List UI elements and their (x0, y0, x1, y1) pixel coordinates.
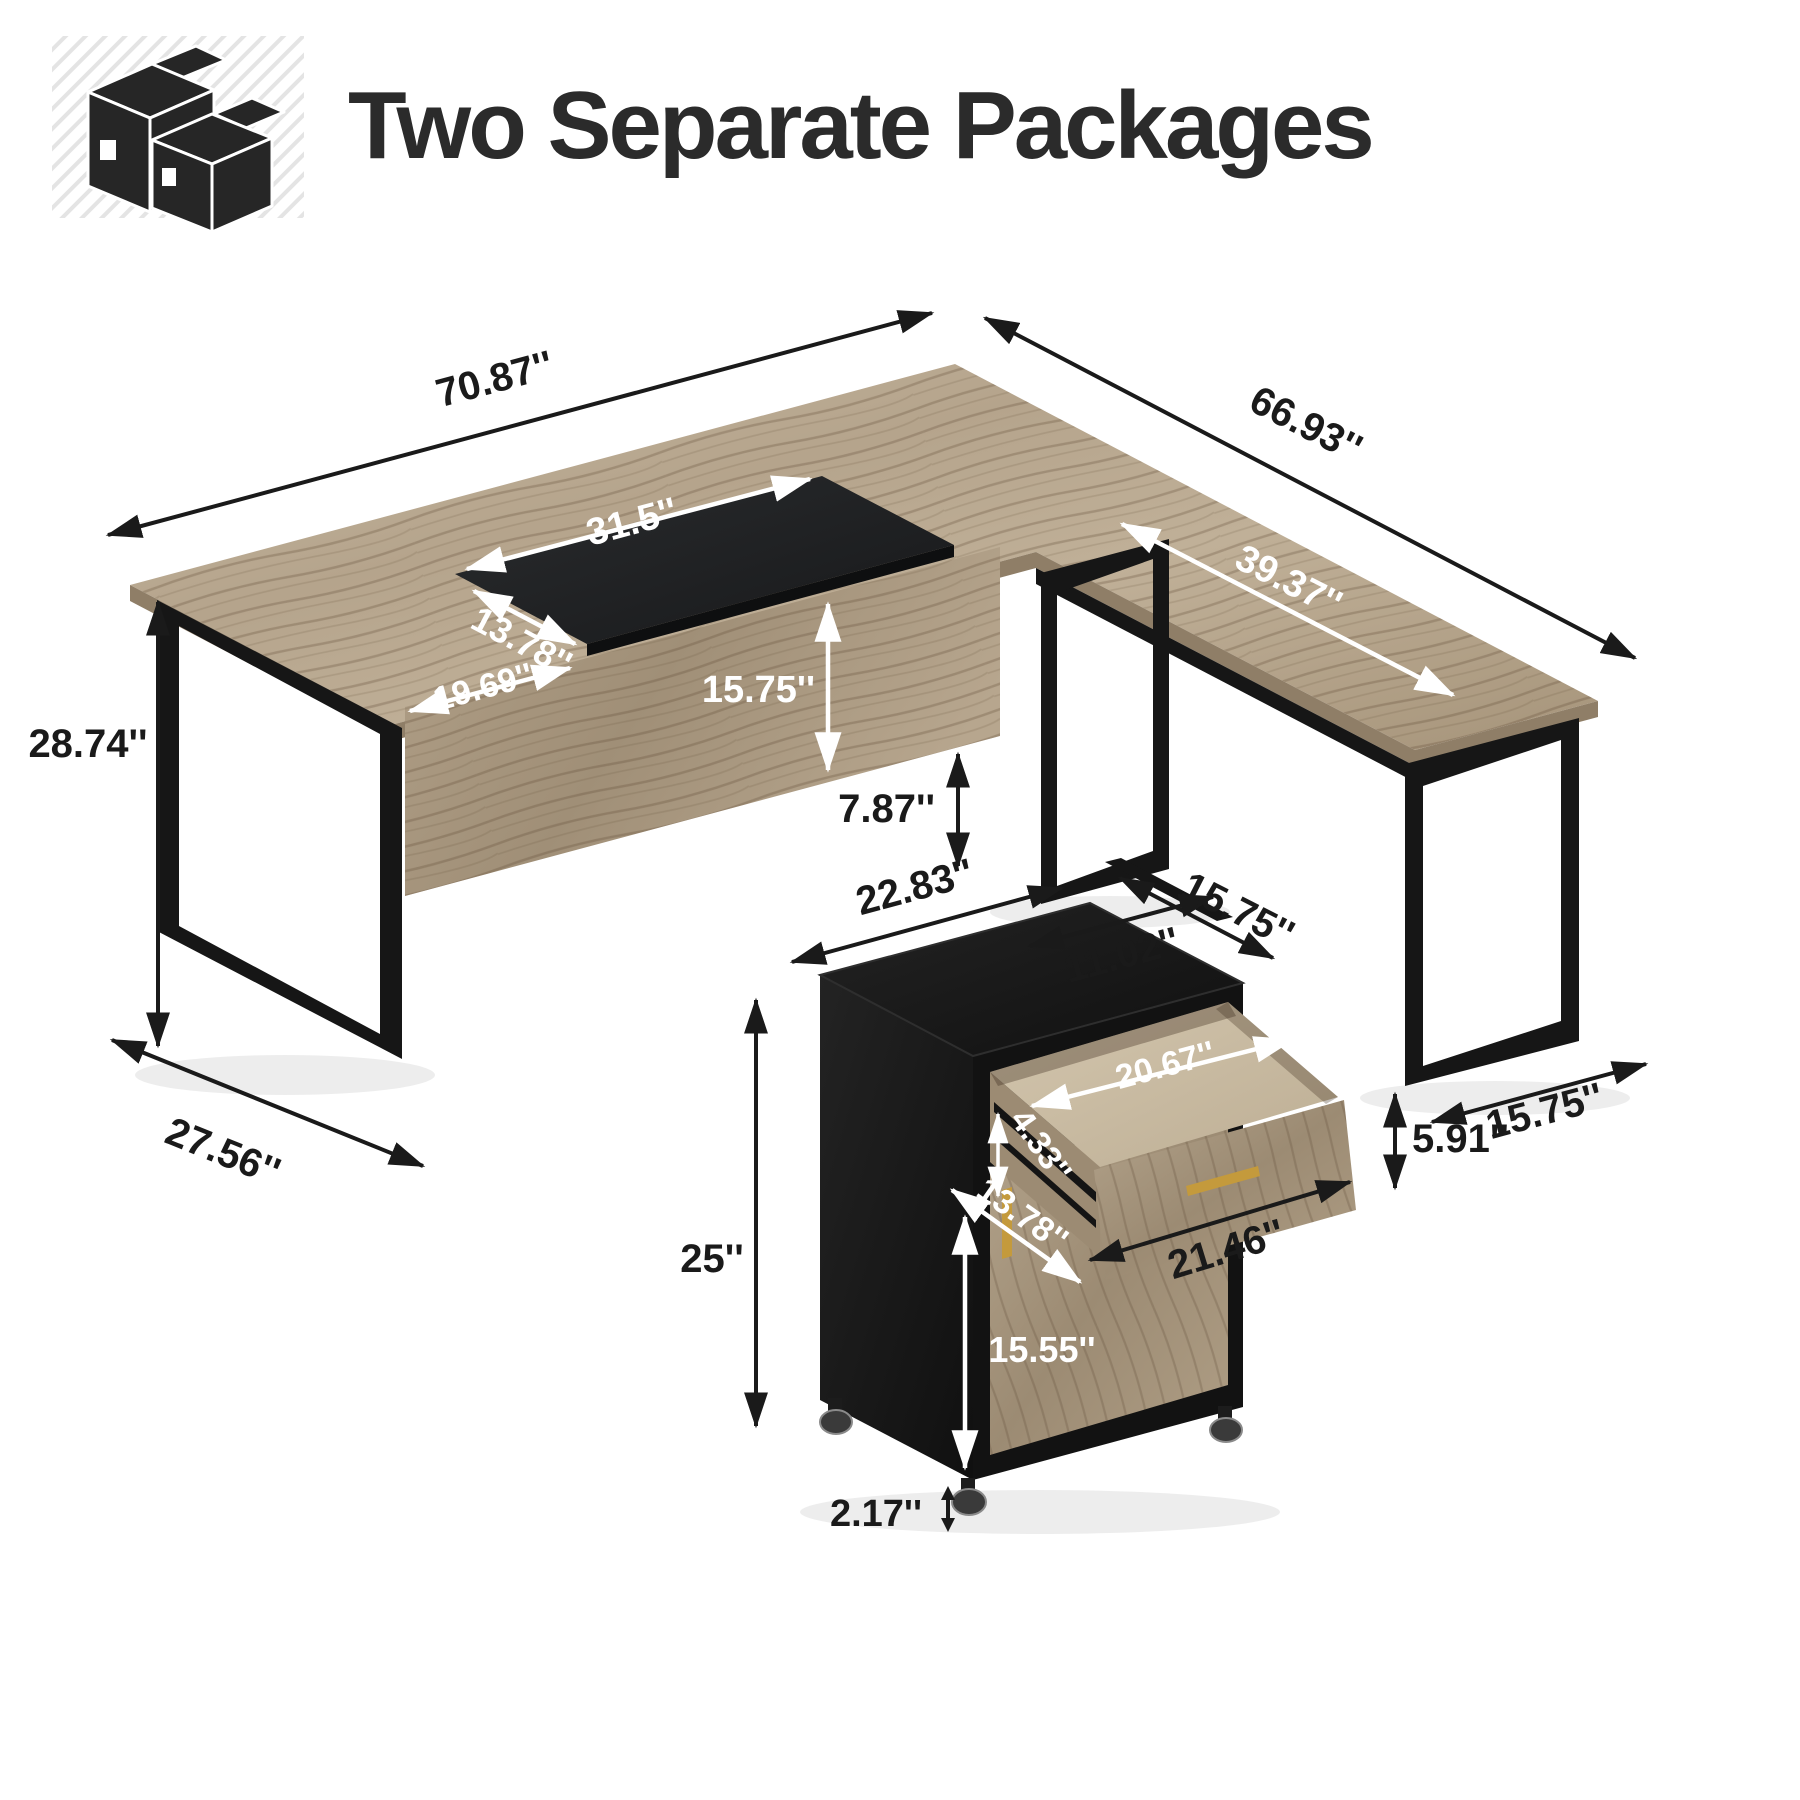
dim-panel-floor-gap: 7.87'' (838, 787, 935, 831)
cabinet-illustration (820, 903, 1356, 1515)
page-title: Two Separate Packages (348, 72, 1372, 179)
dim-desk-height: 28.74'' (28, 722, 147, 766)
dim-door-height: 15.55'' (988, 1329, 1095, 1370)
header: Two Separate Packages (52, 36, 1372, 232)
product-dimension-diagram: Two Separate Packages (0, 0, 1800, 1800)
dim-caster-height: 2.17'' (830, 1493, 922, 1535)
dim-front-panel-height: 15.75'' (702, 669, 815, 711)
cabinet-left-face (820, 975, 973, 1480)
dim-cab-top-depth: 15.75'' (1175, 864, 1301, 957)
dim-cab-height: 25'' (680, 1237, 744, 1281)
dim-drawer-front-height: 5.91'' (1412, 1117, 1509, 1161)
diagram-canvas: Two Separate Packages (0, 0, 1800, 1800)
dim-cab-top-width: 22.83'' (851, 851, 977, 924)
dim-desk-length: 70.87'' (431, 343, 557, 416)
dim-leg-depth: 27.56'' (159, 1109, 286, 1194)
dim-return-length: 66.93'' (1243, 378, 1369, 471)
desk-right-leg (1405, 718, 1579, 1086)
